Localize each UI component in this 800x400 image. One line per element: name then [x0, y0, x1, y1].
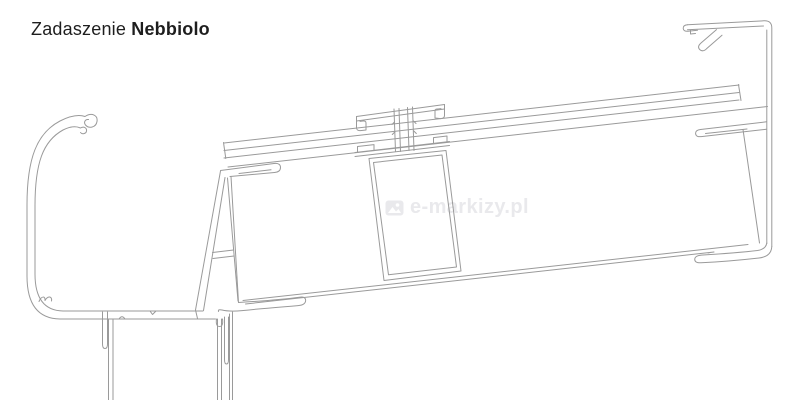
product-diagram-page: Zadaszenie Nebbiolo e-markizy.pl: [0, 0, 800, 400]
gutter-front-profile: [27, 114, 97, 276]
page-title-product: Nebbiolo: [131, 19, 210, 39]
post-profile: [103, 312, 233, 400]
rafter-profile: [369, 151, 461, 281]
gutter-body: [27, 274, 216, 319]
page-title-regular: Zadaszenie: [31, 19, 126, 39]
page-title: Zadaszenie Nebbiolo: [31, 19, 210, 39]
roof-panel: [224, 85, 768, 168]
wall-profile: [683, 21, 772, 263]
canopy-cross-section-drawing: [0, 0, 800, 400]
bottom-closing-plate: [243, 245, 748, 305]
